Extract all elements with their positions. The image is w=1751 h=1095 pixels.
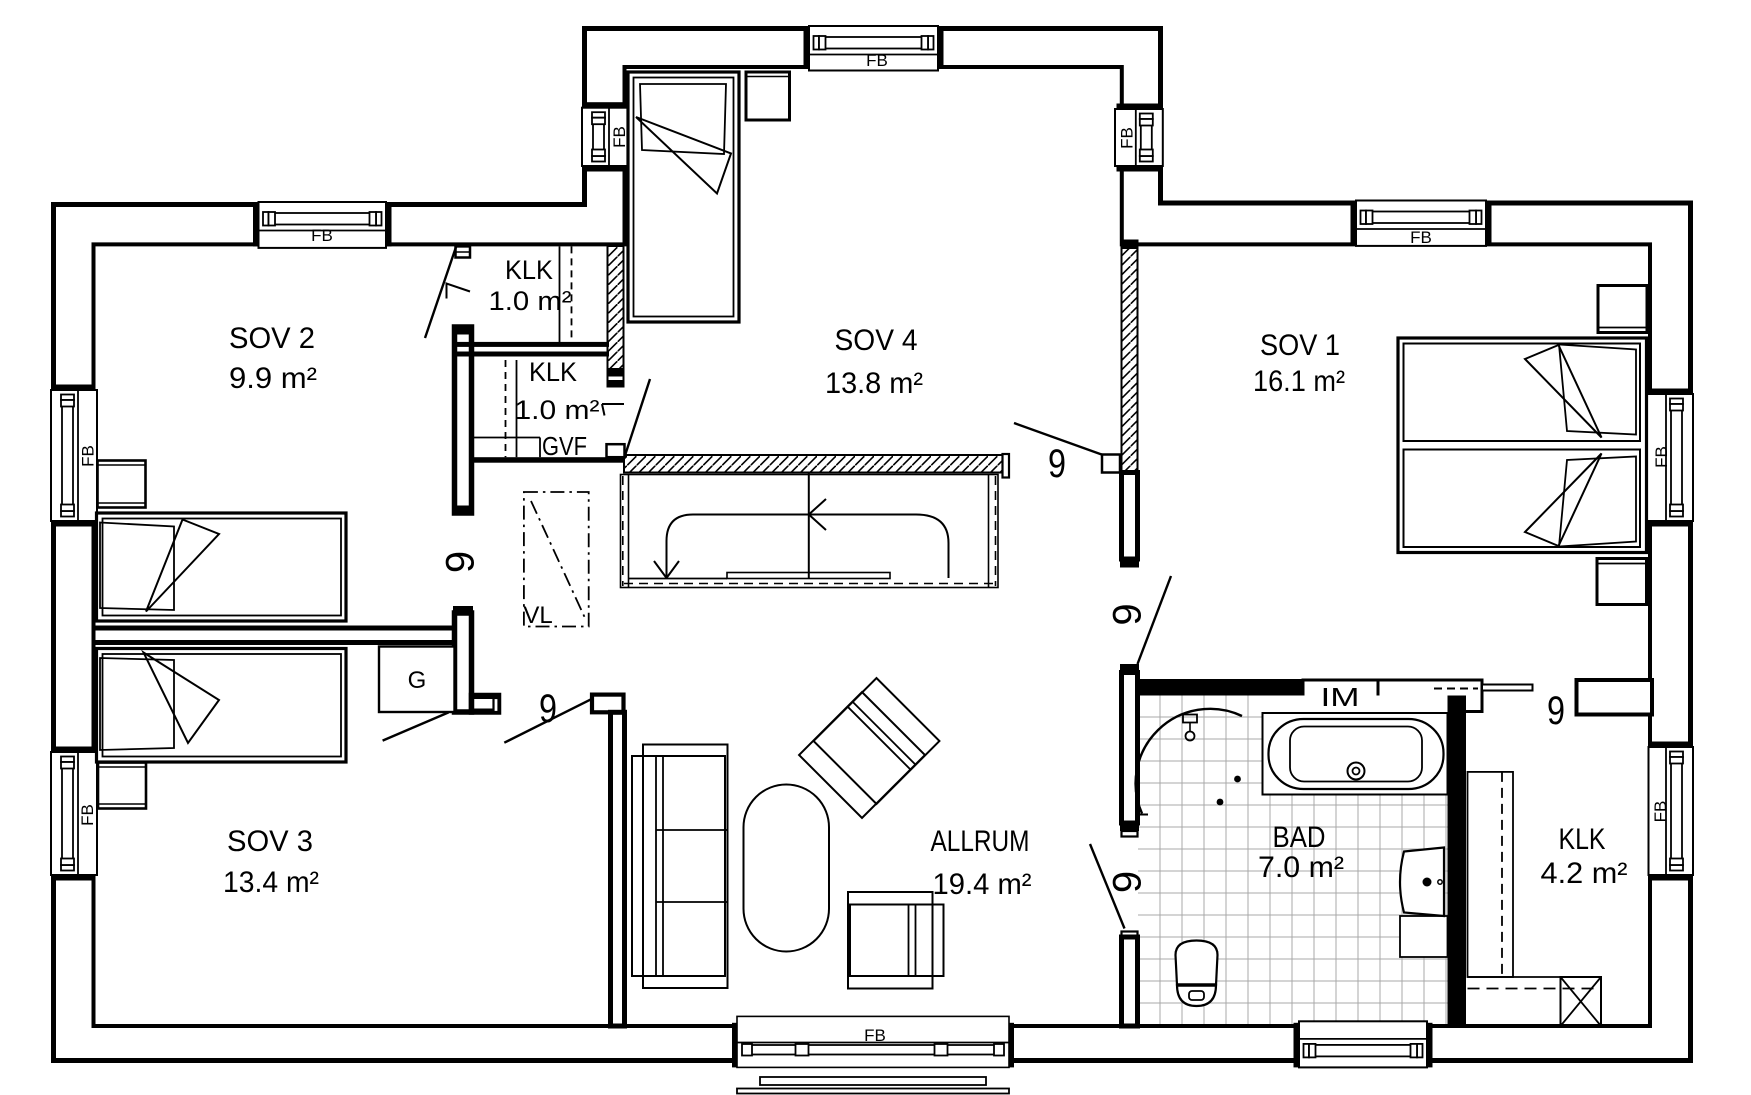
svg-text:G: G xyxy=(408,667,427,694)
svg-text:BAD: BAD xyxy=(1273,821,1326,854)
svg-text:9: 9 xyxy=(539,687,557,731)
svg-text:ALLRUM: ALLRUM xyxy=(931,825,1030,858)
svg-text:KLK: KLK xyxy=(505,255,553,285)
svg-text:FB: FB xyxy=(78,804,97,826)
svg-text:FB: FB xyxy=(79,445,98,467)
svg-text:19.4 m²: 19.4 m² xyxy=(933,868,1032,901)
svg-text:9: 9 xyxy=(1106,871,1150,893)
svg-text:FB: FB xyxy=(311,226,333,245)
svg-text:9: 9 xyxy=(1106,603,1150,625)
svg-text:SOV 4: SOV 4 xyxy=(835,324,918,357)
svg-text:9: 9 xyxy=(439,551,483,573)
svg-text:SOV 3: SOV 3 xyxy=(227,825,313,858)
svg-text:FB: FB xyxy=(1118,127,1137,149)
svg-text:KLK: KLK xyxy=(529,357,577,387)
svg-text:GVF: GVF xyxy=(542,431,587,461)
svg-text:VL: VL xyxy=(523,602,552,629)
svg-text:SOV 1: SOV 1 xyxy=(1260,329,1340,362)
svg-text:IM: IM xyxy=(1321,682,1360,712)
svg-text:9.9 m²: 9.9 m² xyxy=(229,362,317,395)
svg-text:1.0 m²: 1.0 m² xyxy=(515,395,600,425)
svg-text:7.0 m²: 7.0 m² xyxy=(1258,851,1344,884)
svg-text:FB: FB xyxy=(1651,801,1670,823)
svg-text:KLK: KLK xyxy=(1559,823,1606,856)
svg-text:FB: FB xyxy=(866,51,888,70)
svg-text:13.8 m²: 13.8 m² xyxy=(825,367,923,400)
svg-text:9: 9 xyxy=(1547,689,1565,733)
svg-text:FB: FB xyxy=(1410,228,1432,247)
svg-text:SOV 2: SOV 2 xyxy=(229,322,315,355)
svg-text:1.0 m²: 1.0 m² xyxy=(489,286,572,316)
svg-text:FB: FB xyxy=(610,126,629,148)
svg-text:9: 9 xyxy=(1048,442,1066,486)
svg-text:16.1 m²: 16.1 m² xyxy=(1253,365,1345,398)
svg-text:13.4 m²: 13.4 m² xyxy=(223,866,319,899)
svg-text:FB: FB xyxy=(1652,446,1671,468)
svg-text:4.2 m²: 4.2 m² xyxy=(1541,857,1628,890)
